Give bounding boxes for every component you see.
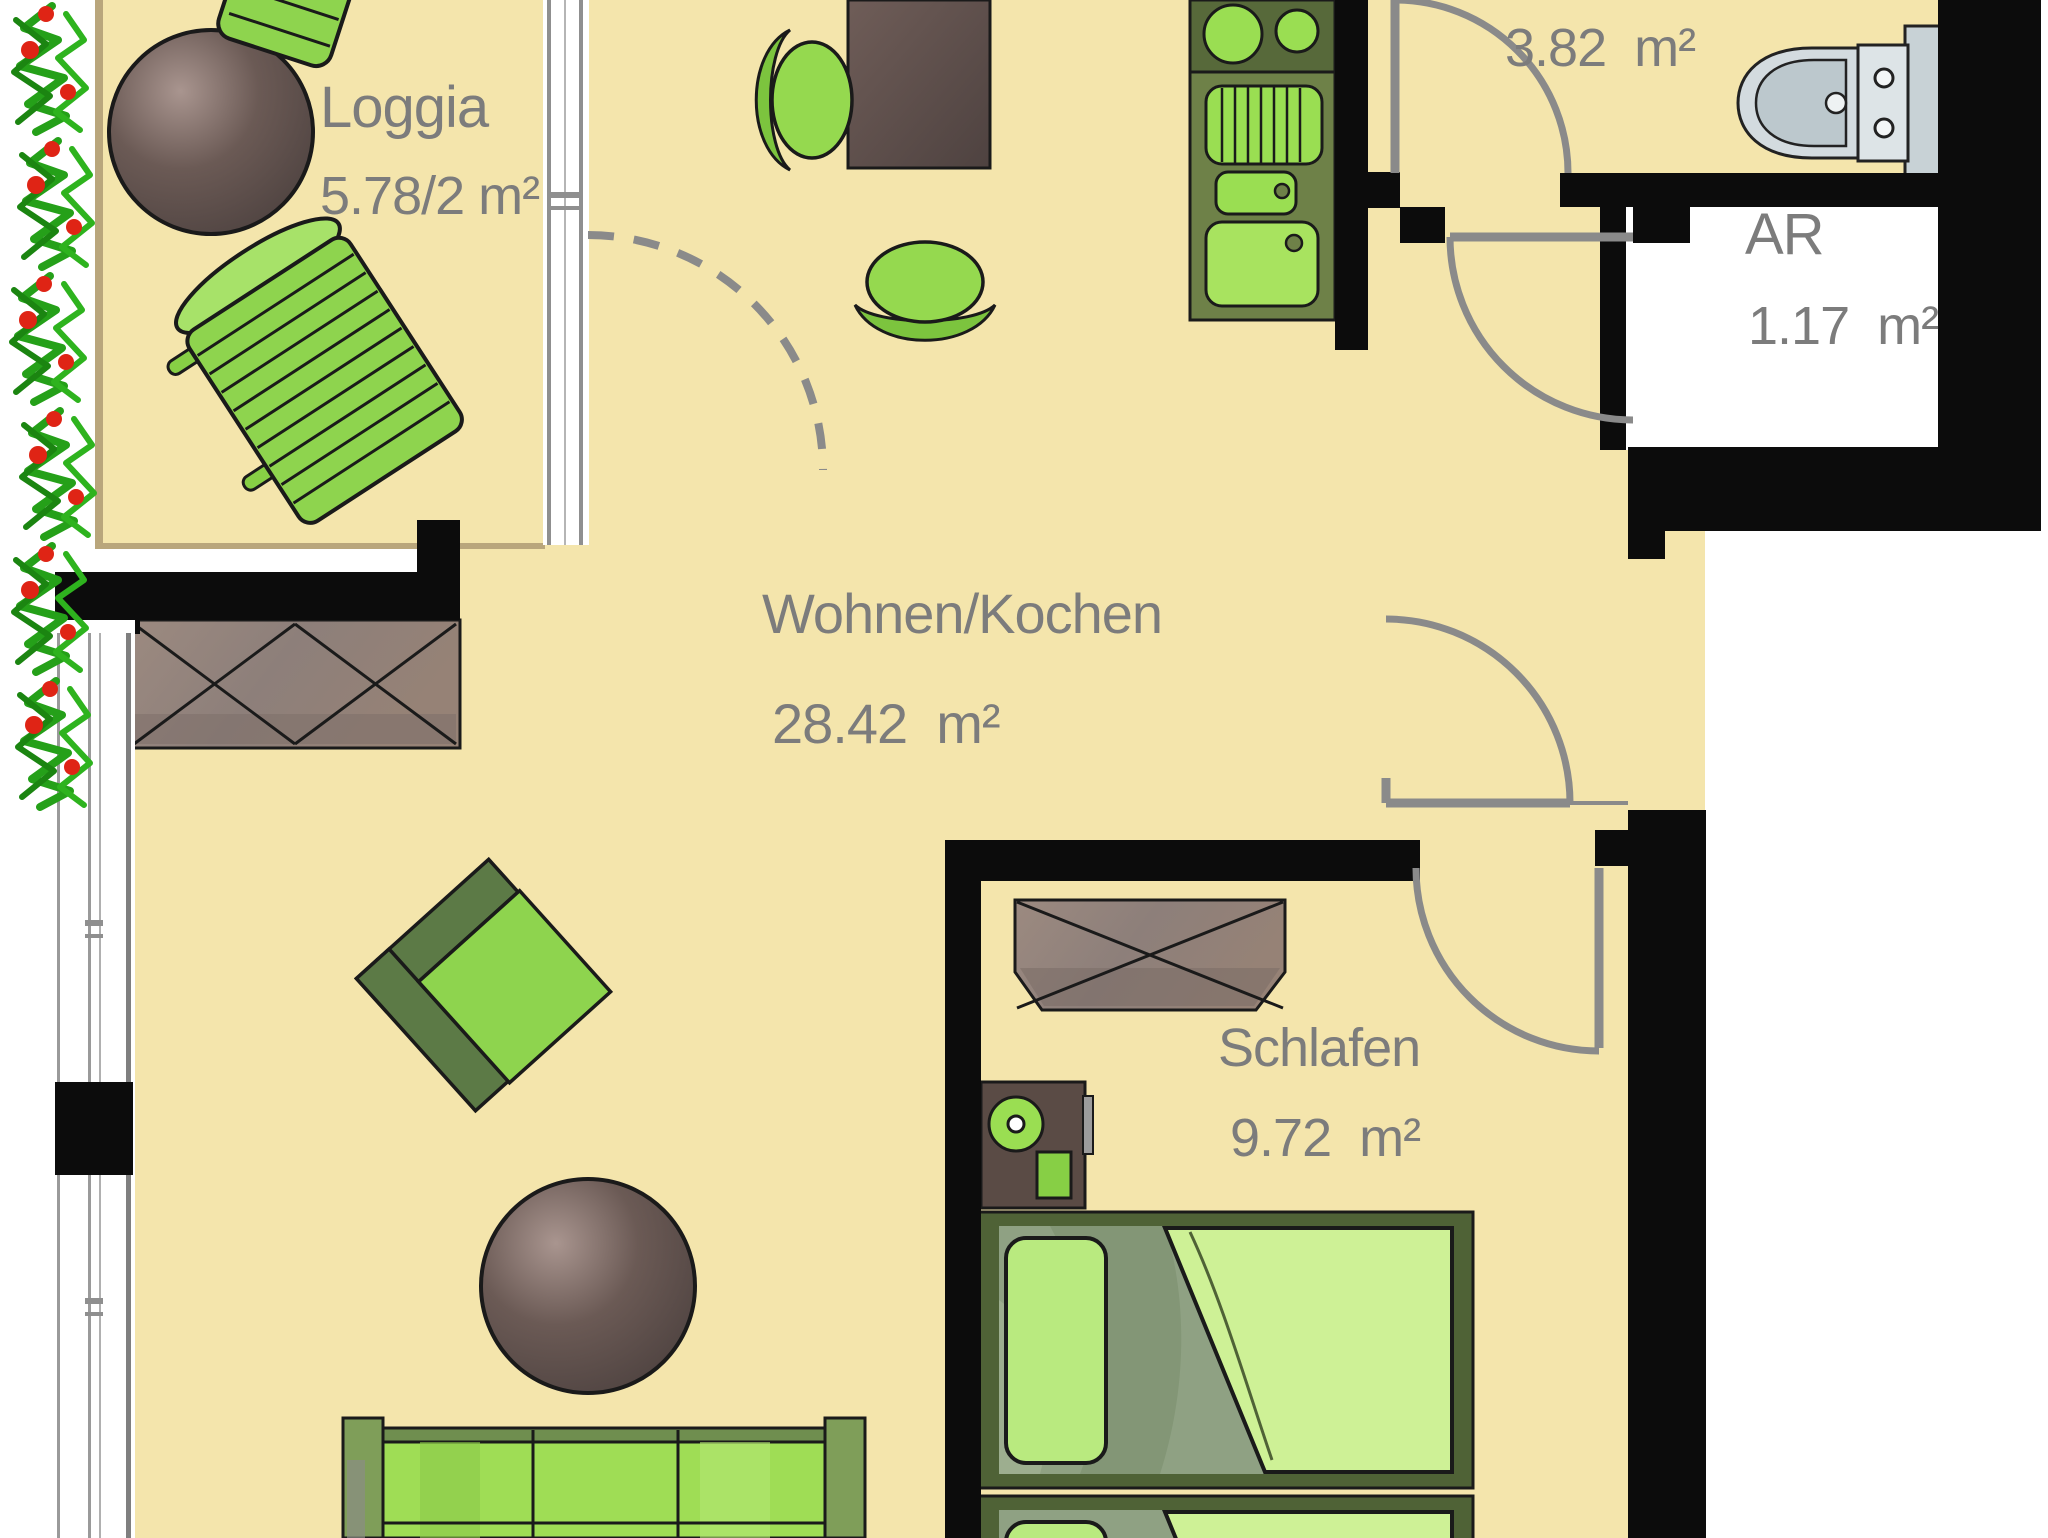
loggia-round-table <box>109 30 313 234</box>
room-label-bad-area: 3.82 m² <box>1505 20 1695 77</box>
floor-plan-drawing <box>0 0 2048 1538</box>
nightstand-plant-icon <box>981 1082 1093 1208</box>
pillow-icon <box>1006 1238 1106 1463</box>
duvet-icon <box>1165 1512 1452 1538</box>
coffee-table-icon <box>481 1179 695 1393</box>
room-label-wohnen-name: Wohnen/Kochen <box>762 585 1162 644</box>
main-sink-icon <box>1206 222 1318 306</box>
loggia-glass-door <box>543 0 589 545</box>
sofa-icon <box>343 1418 865 1538</box>
room-label-schlafen-area: 9.72 m² <box>1230 1110 1420 1167</box>
single-bed-icon <box>979 1212 1473 1488</box>
sideboard-icon <box>130 620 460 748</box>
kitchenette-icon <box>1190 0 1335 320</box>
drainer-icon <box>1206 86 1322 164</box>
room-label-loggia-area: 5.78/2 m² <box>320 168 539 225</box>
room-label-loggia-name: Loggia <box>320 78 488 139</box>
room-label-ar-name: AR <box>1745 205 1824 266</box>
pillow-icon <box>1006 1522 1106 1538</box>
room-label-wohnen-area: 28.42 m² <box>772 695 1000 754</box>
single-bed-icon <box>979 1496 1473 1538</box>
floor-plan: Loggia 5.78/2 m² Wohnen/Kochen 28.42 m² … <box>0 0 2048 1538</box>
hob-burner-icon <box>1276 10 1318 52</box>
room-label-ar-area: 1.17 m² <box>1748 298 1938 355</box>
wardrobe-icon <box>1015 900 1285 1010</box>
hob-burner-icon <box>1204 5 1262 63</box>
room-label-schlafen-name: Schlafen <box>1218 1020 1420 1077</box>
desk-icon <box>848 0 990 168</box>
